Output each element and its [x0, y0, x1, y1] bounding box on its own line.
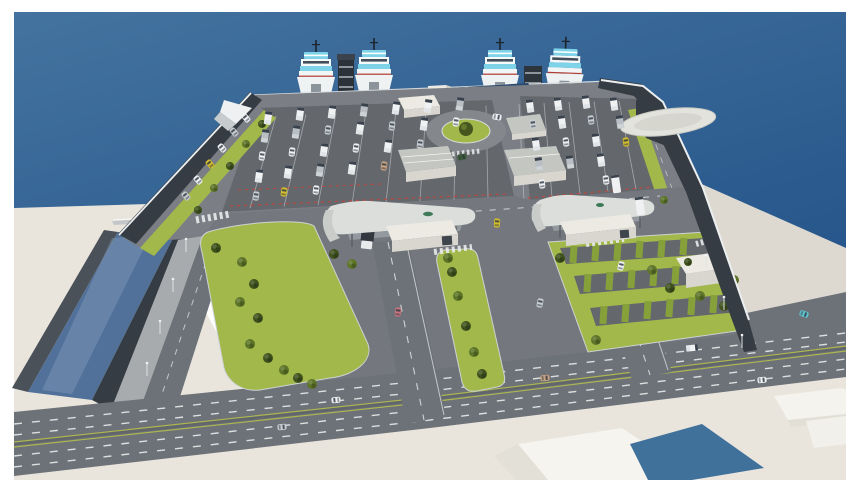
vehicle [331, 397, 341, 404]
bush [307, 379, 317, 389]
canopy-logo [423, 212, 433, 216]
bush [253, 313, 263, 323]
bush [279, 365, 289, 375]
bush [660, 196, 668, 204]
render-frame [0, 0, 860, 480]
bush [453, 291, 463, 301]
bush [591, 335, 601, 345]
bush [211, 243, 221, 253]
bush [443, 253, 453, 263]
bush [555, 253, 565, 263]
warehouse [398, 146, 456, 182]
warehouse [398, 95, 440, 118]
bush [237, 257, 247, 267]
bush [249, 279, 259, 289]
bush [684, 258, 692, 266]
bush [329, 249, 339, 259]
vehicle [757, 377, 767, 384]
bush [235, 297, 245, 307]
bush [194, 206, 202, 214]
warehouse [506, 114, 546, 140]
canopy-logo [596, 203, 604, 207]
loading-tower [337, 54, 355, 96]
bush [293, 373, 303, 383]
bush [263, 353, 273, 363]
vehicle [277, 424, 287, 431]
bush [210, 184, 218, 192]
vehicle [540, 375, 550, 382]
bush [461, 321, 471, 331]
bush [226, 162, 234, 170]
bush [665, 283, 675, 293]
bush [695, 291, 705, 301]
vehicle [494, 218, 501, 227]
roundabout-tree [459, 122, 473, 136]
bush [647, 265, 657, 275]
bush [477, 369, 487, 379]
port-render [0, 0, 860, 480]
vehicle [686, 344, 698, 351]
bush [245, 339, 255, 349]
bush [447, 267, 457, 277]
bush [469, 347, 479, 357]
bush [347, 259, 357, 269]
bush [242, 140, 250, 148]
